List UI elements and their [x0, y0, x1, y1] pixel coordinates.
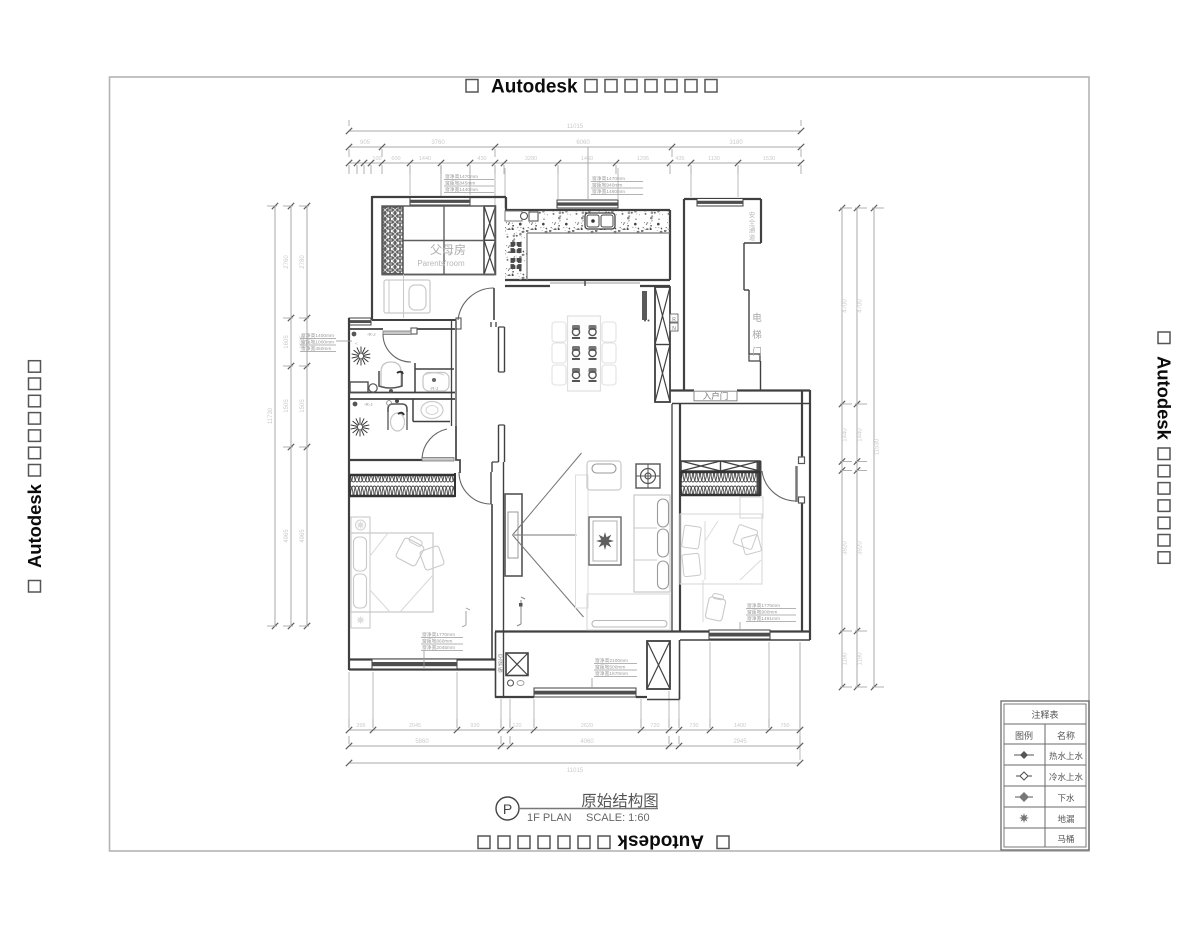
svg-text:门: 门: [752, 346, 762, 358]
svg-text:调: 调: [498, 660, 504, 668]
svg-text:板: 板: [498, 666, 504, 674]
svg-text:2045: 2045: [409, 723, 421, 729]
svg-text:窗净高1770mm: 窗净高1770mm: [422, 631, 455, 638]
svg-text:100: 100: [372, 156, 381, 162]
svg-text:3180: 3180: [729, 140, 743, 146]
svg-text:窗净高1400mm: 窗净高1400mm: [301, 332, 334, 339]
svg-text:3280: 3280: [525, 156, 537, 162]
svg-text:空: 空: [498, 653, 504, 661]
svg-text:435: 435: [675, 156, 684, 162]
svg-text:通: 通: [749, 225, 756, 234]
svg-text:1460: 1460: [581, 156, 593, 162]
svg-text:-R-J: -R-J: [430, 386, 439, 391]
svg-text:1530: 1530: [763, 156, 775, 162]
svg-text:120: 120: [512, 723, 521, 729]
svg-text:P: P: [503, 801, 512, 817]
svg-text:1440: 1440: [858, 428, 864, 442]
svg-text:窗净高1770mm: 窗净高1770mm: [747, 602, 780, 609]
svg-text:马桶: 马桶: [1057, 834, 1074, 844]
svg-text:SCALE: 1:60: SCALE: 1:60: [586, 812, 650, 824]
svg-text:1F PLAN: 1F PLAN: [527, 812, 572, 824]
svg-text:1295: 1295: [637, 156, 649, 162]
svg-text:11530: 11530: [875, 438, 881, 455]
svg-text:430: 430: [477, 156, 486, 162]
svg-text:窗距地1000mm: 窗距地1000mm: [301, 339, 334, 346]
svg-text:1605: 1605: [284, 335, 290, 349]
svg-text:1440: 1440: [419, 156, 431, 162]
svg-text:1190: 1190: [858, 652, 864, 666]
svg-text:Autodesk: Autodesk: [617, 831, 704, 852]
svg-text:-R-J: -R-J: [364, 402, 373, 407]
svg-text:热水上水: 热水上水: [1049, 751, 1084, 761]
svg-text:图例: 图例: [1015, 730, 1033, 741]
svg-text:2620: 2620: [581, 723, 593, 729]
svg-text:1505: 1505: [300, 399, 306, 413]
svg-text:730: 730: [689, 723, 698, 729]
svg-text:窗距地940mm: 窗距地940mm: [592, 182, 622, 189]
svg-text:父母房: 父母房: [430, 242, 466, 257]
svg-text:4700: 4700: [843, 299, 849, 313]
svg-text:Autodesk: Autodesk: [24, 483, 45, 568]
svg-text:注释表: 注释表: [1031, 709, 1058, 720]
svg-text:6060: 6060: [576, 140, 590, 146]
svg-text:窗净宽2045mm: 窗净宽2045mm: [422, 644, 455, 651]
svg-text:4060: 4060: [580, 739, 594, 745]
svg-text:3920: 3920: [843, 541, 849, 555]
svg-text:720: 720: [650, 723, 659, 729]
svg-text:750: 750: [780, 723, 789, 729]
svg-text:1190: 1190: [843, 652, 849, 666]
svg-text:Autodesk: Autodesk: [491, 77, 578, 98]
svg-text:Autodesk: Autodesk: [1154, 356, 1175, 441]
svg-text:窗距地660mm: 窗距地660mm: [422, 638, 452, 645]
svg-text:窗净宽450mm: 窗净宽450mm: [301, 345, 331, 352]
svg-text:电: 电: [752, 312, 762, 324]
svg-text:冷水上水: 冷水上水: [1049, 772, 1084, 782]
svg-text:3920: 3920: [858, 541, 864, 555]
svg-text:窗距地500mm: 窗距地500mm: [595, 664, 625, 671]
svg-text:窗净宽1491mm: 窗净宽1491mm: [747, 615, 780, 622]
svg-text:全: 全: [749, 218, 756, 227]
svg-text:<: <: [355, 341, 358, 346]
svg-text:窗净宽1460mm: 窗净宽1460mm: [592, 188, 625, 195]
svg-text:395: 395: [356, 723, 365, 729]
svg-text:窗净高1470mm: 窗净高1470mm: [445, 173, 478, 180]
svg-text:5860: 5860: [415, 739, 429, 745]
svg-text:R: R: [672, 317, 676, 323]
svg-text:1440: 1440: [843, 428, 849, 442]
svg-text:2760: 2760: [284, 255, 290, 269]
svg-text:安: 安: [749, 210, 756, 219]
svg-text:原始结构图: 原始结构图: [581, 792, 659, 810]
svg-text:窗距地900mm: 窗距地900mm: [747, 609, 777, 616]
svg-text:920: 920: [470, 723, 479, 729]
svg-text:1130: 1130: [708, 156, 720, 162]
svg-text:1505: 1505: [284, 399, 290, 413]
svg-text:2780: 2780: [300, 255, 306, 269]
svg-text:905: 905: [360, 140, 371, 146]
svg-text:4700: 4700: [858, 299, 864, 313]
svg-text:Parents'room: Parents'room: [417, 259, 465, 268]
svg-text:窗净宽1670mm: 窗净宽1670mm: [595, 670, 628, 677]
svg-text:窗净高1470mm: 窗净高1470mm: [592, 175, 625, 182]
svg-text:下水: 下水: [1057, 793, 1075, 803]
svg-text:地漏: 地漏: [1057, 814, 1075, 824]
svg-text:3760: 3760: [431, 140, 445, 146]
svg-text:窗净高2100mm: 窗净高2100mm: [595, 657, 628, 664]
svg-text:N: N: [672, 326, 676, 332]
svg-text:11015: 11015: [567, 768, 584, 774]
svg-text:名称: 名称: [1057, 730, 1075, 741]
svg-text:2945: 2945: [733, 739, 747, 745]
svg-text:11015: 11015: [567, 124, 584, 130]
svg-text:1400: 1400: [734, 723, 746, 729]
svg-text:窗距地845mm: 窗距地845mm: [445, 180, 475, 187]
svg-text:梯: 梯: [752, 329, 762, 341]
svg-text:600: 600: [391, 156, 400, 162]
svg-text:窗净宽1440mm: 窗净宽1440mm: [445, 186, 478, 193]
svg-text:11730: 11730: [268, 407, 274, 424]
svg-text:-R-J: -R-J: [367, 332, 376, 337]
svg-text:4965: 4965: [300, 529, 306, 543]
svg-text:道: 道: [749, 233, 756, 242]
svg-text:入户门: 入户门: [703, 391, 729, 401]
svg-text:4965: 4965: [284, 529, 290, 543]
